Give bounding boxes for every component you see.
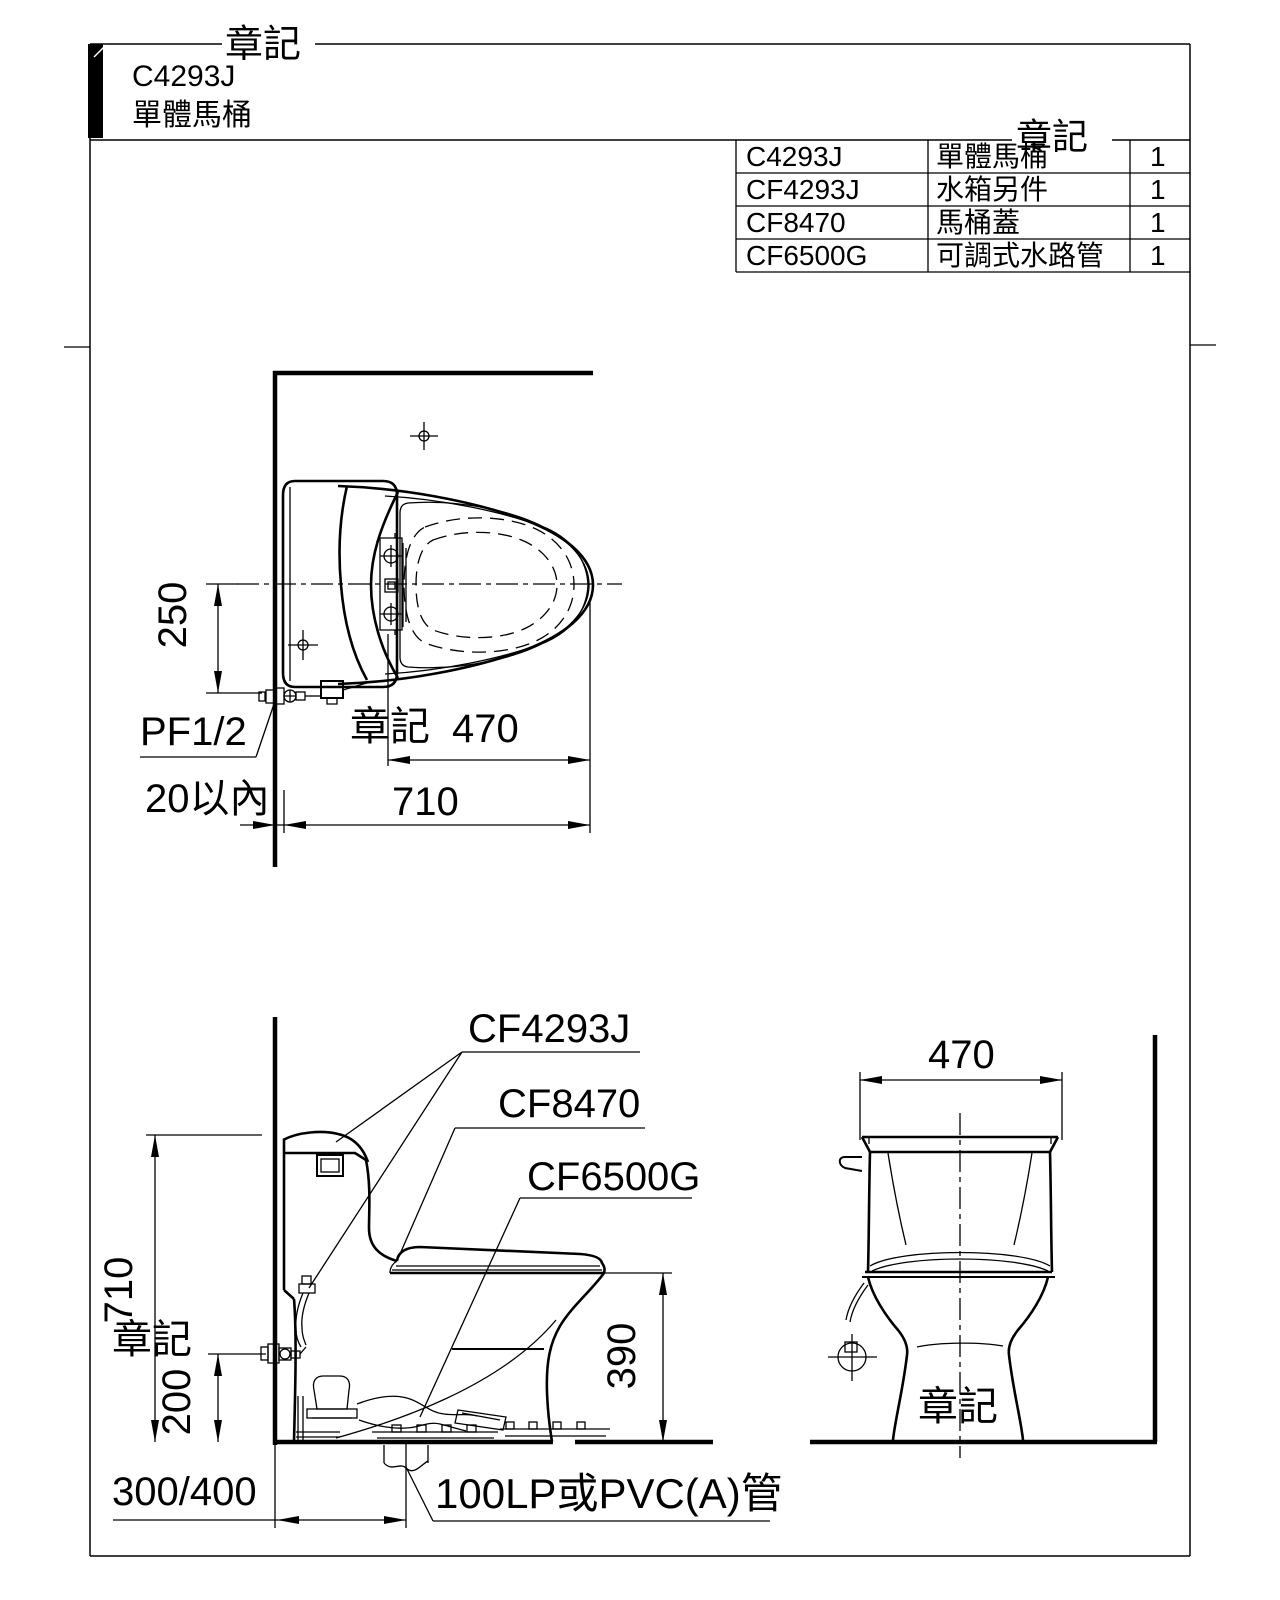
label-cf6500g-text: CF6500G — [527, 1155, 700, 1199]
dim-rough-in-text: 300/400 — [112, 1470, 257, 1514]
part-name: 馬桶蓋 — [936, 207, 1020, 238]
part-qty: 1 — [1150, 141, 1166, 172]
drain-note-text: 100LP或PVC(A)管 — [435, 1470, 783, 1517]
label-cf8470-text: CF8470 — [498, 1082, 640, 1126]
front-view-watermark: 章記 — [918, 1385, 998, 1429]
inlet-label: PF1/2 — [140, 704, 274, 757]
dim-w470-text: 470 — [928, 1033, 995, 1077]
inlet-label-text: PF1/2 — [140, 710, 247, 754]
top-view-watermark: 章記 — [350, 705, 430, 749]
dim-200: 200 — [155, 1354, 266, 1442]
part-name: 可調式水路管 — [936, 240, 1104, 271]
dim-710-top: 20以內 710 — [145, 777, 590, 833]
table-row: CF6500G 可調式水路管 1 — [746, 240, 1166, 271]
part-qty: 1 — [1150, 207, 1166, 238]
product-name: 單體馬桶 — [132, 99, 252, 132]
dim-250-text: 250 — [151, 582, 195, 649]
dim-rough-in: 300/400 — [112, 1445, 406, 1528]
part-qty: 1 — [1150, 174, 1166, 205]
inlet-valve-plan — [259, 688, 321, 704]
drain-pipe — [384, 1443, 428, 1528]
dim-h710-text: 710 — [97, 1257, 141, 1324]
drawing-sheet: 章記 C4293J 單體馬桶 章記 C4293J 單體馬桶 1 CF4293J … — [0, 0, 1280, 1600]
part-qty: 1 — [1150, 240, 1166, 271]
dim-470-front: 470 — [860, 1033, 1062, 1140]
side-view-watermark: 章記 — [112, 1318, 192, 1362]
table-row: CF8470 馬桶蓋 1 — [746, 207, 1166, 238]
part-code: C4293J — [746, 141, 843, 172]
title-block: 章記 C4293J 單體馬桶 — [132, 24, 301, 132]
dim-470-text: 470 — [452, 707, 519, 751]
dim-390-text: 390 — [600, 1323, 644, 1390]
label-cf4293j-text: CF4293J — [468, 1007, 630, 1051]
dim-390: 390 — [600, 1273, 672, 1442]
side-view: CF4293J CF8470 CF6500G 710 章記 200 — [97, 1007, 783, 1528]
toilet-technical-drawing: 章記 C4293J 單體馬桶 章記 C4293J 單體馬桶 1 CF4293J … — [0, 0, 1280, 1600]
part-code: CF8470 — [746, 207, 846, 238]
model-number: C4293J — [132, 60, 235, 93]
supply-valve-front — [828, 1283, 877, 1381]
sheet-watermark-top: 章記 — [225, 24, 301, 66]
drain-note: 100LP或PVC(A)管 — [406, 1467, 783, 1521]
table-row: C4293J 單體馬桶 1 — [746, 141, 1166, 172]
corner-bar — [88, 44, 103, 138]
dim-250: 250 — [151, 582, 262, 693]
dim-710-text: 710 — [392, 780, 459, 824]
part-code: CF4293J — [746, 174, 860, 205]
front-view: 470 章記 — [810, 1033, 1157, 1458]
trapway — [296, 1320, 610, 1440]
part-name: 單體馬桶 — [936, 141, 1048, 172]
part-name: 水箱另件 — [936, 174, 1048, 205]
table-row: CF4293J 水箱另件 1 — [746, 174, 1166, 205]
top-view: 250 PF1/2 章記 470 20以內 710 — [140, 371, 622, 867]
clearance-text: 20以內 — [145, 777, 270, 821]
dim-200-text: 200 — [155, 1369, 199, 1436]
label-cf6500g: CF6500G — [420, 1155, 700, 1417]
inlet-valve-side — [261, 1344, 306, 1363]
part-code: CF6500G — [746, 240, 867, 271]
fill-valve-connection — [296, 1276, 315, 1347]
flush-lever — [840, 1157, 862, 1171]
